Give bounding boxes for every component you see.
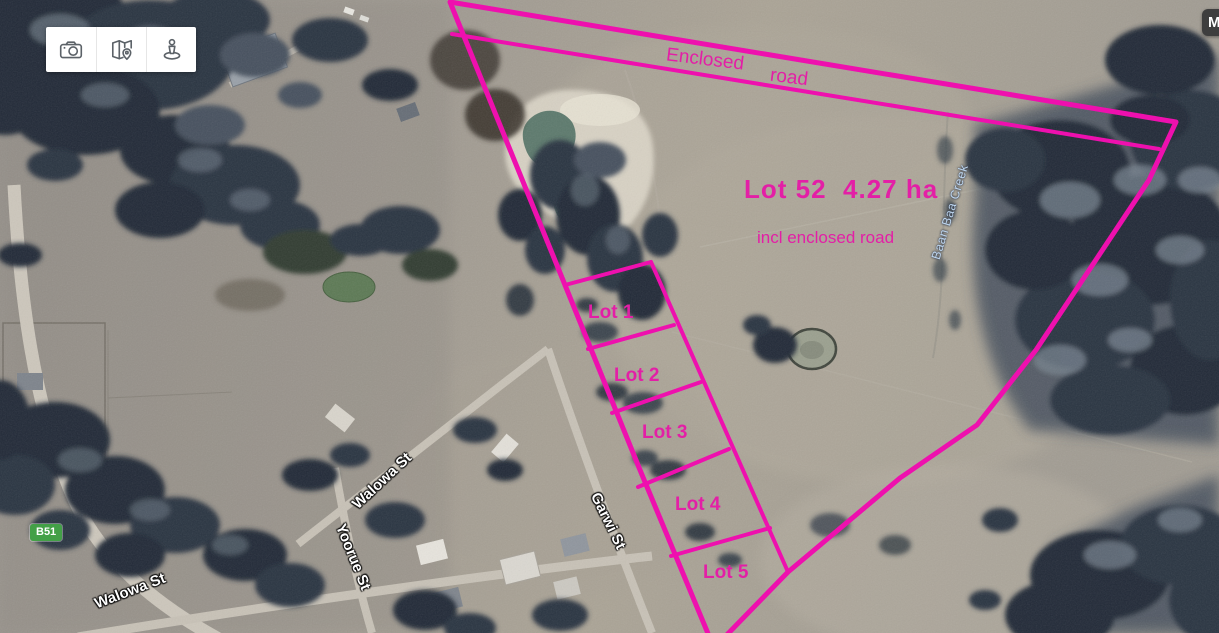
street-view-button[interactable] [146, 27, 196, 72]
lot-1-label: Lot 1 [588, 303, 633, 322]
map-location-icon [109, 37, 135, 63]
media-toolbar [46, 27, 196, 72]
map-location-button[interactable] [96, 27, 146, 72]
lot-52-subtitle: incl enclosed road [757, 229, 894, 246]
lot-3-label: Lot 3 [642, 423, 687, 442]
camera-button[interactable] [46, 27, 96, 72]
camera-icon [58, 37, 84, 63]
enclosed-road-label-word2: road [769, 66, 809, 89]
m-button[interactable]: M [1202, 9, 1219, 36]
m-button-label: M [1208, 14, 1219, 31]
map-viewport: Walowa St Walowa St Yoorue St Garwi St B… [0, 0, 1219, 633]
lot-5-label: Lot 5 [703, 563, 748, 582]
lot-2-label: Lot 2 [614, 366, 659, 385]
street-view-icon [159, 37, 185, 63]
lot-4-label: Lot 4 [675, 495, 720, 514]
route-badge-b51: B51 [30, 524, 62, 541]
lot-52-title: Lot 52 4.27 ha [744, 176, 938, 202]
